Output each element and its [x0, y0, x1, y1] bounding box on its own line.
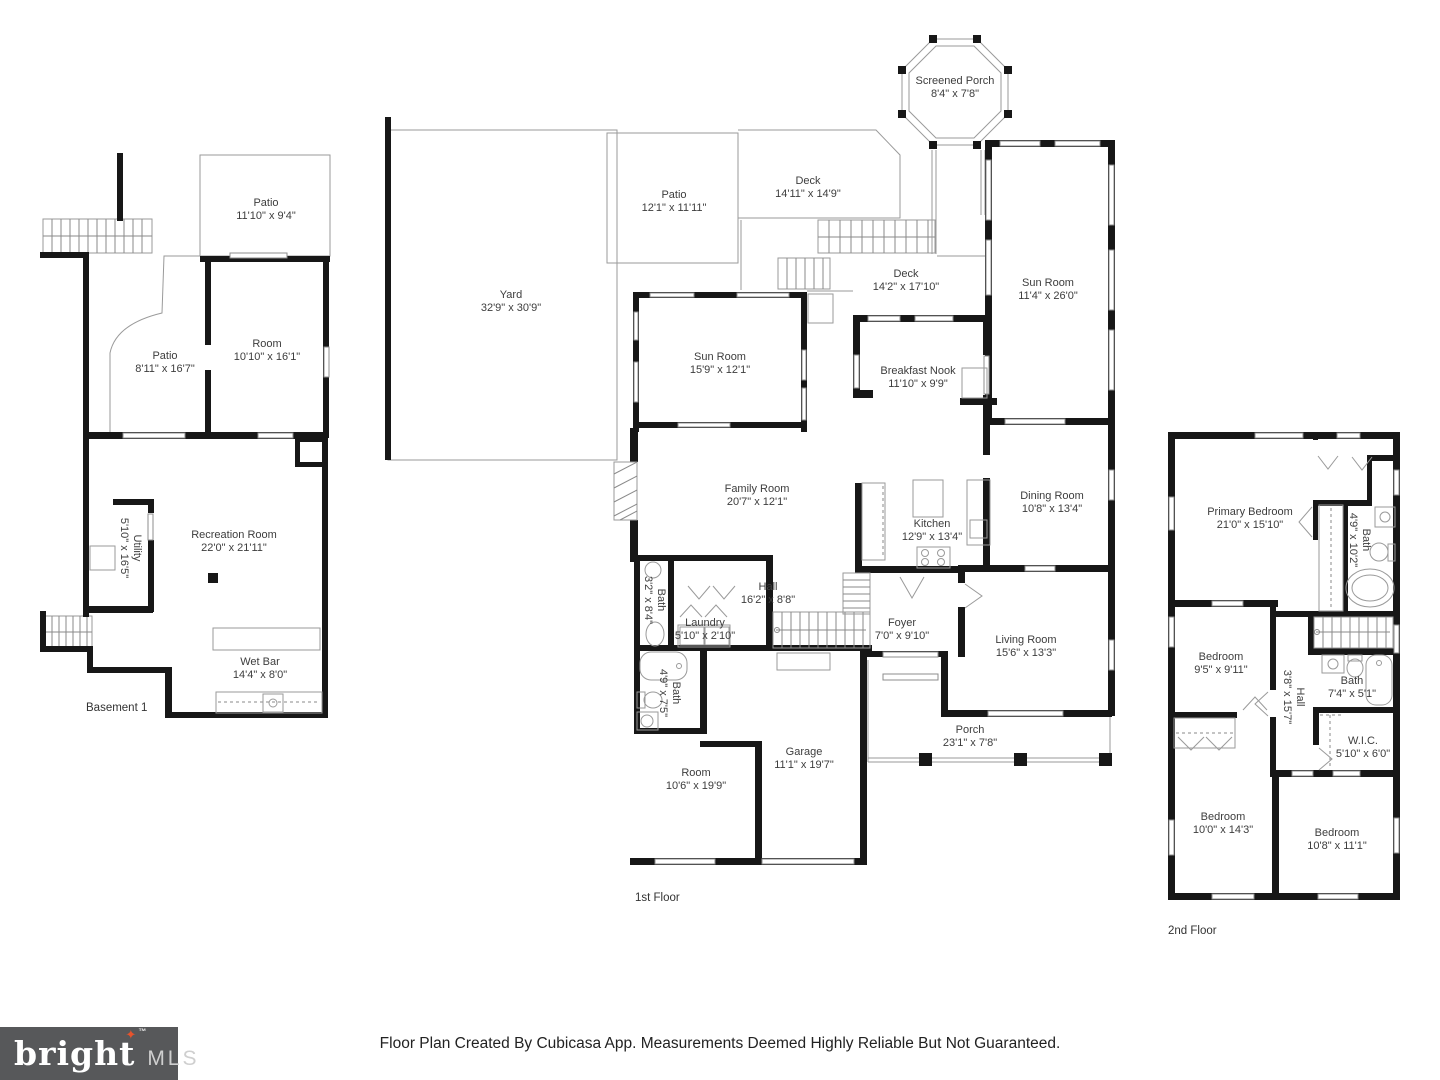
room-label: Deck — [795, 175, 821, 187]
stove-icon — [917, 547, 950, 568]
floor-title-first: 1st Floor — [635, 892, 680, 904]
room-label: Hall — [759, 581, 778, 593]
svg-text:4'9" x 10'2": 4'9" x 10'2" — [1347, 513, 1359, 567]
room-label: Bedroom — [1201, 811, 1246, 823]
room-label: W.I.C. — [1348, 735, 1378, 747]
room-label: Dining Room — [1020, 490, 1084, 502]
first-floor-plan: Screened Porch 8'4" x 7'8" Yard 32'9" x … — [385, 35, 1115, 904]
room-dims: 10'0" x 14'3" — [1193, 824, 1253, 836]
room-label: Deck — [893, 268, 919, 280]
toilet-icon — [646, 622, 664, 646]
washer-icon — [90, 546, 115, 570]
room-label: Patio — [253, 197, 278, 209]
room-dims: 15'6" x 13'3" — [996, 647, 1056, 659]
stairs-icon — [1314, 617, 1393, 648]
room-dims: 14'2" x 17'10" — [873, 281, 940, 293]
refrigerator-icon — [962, 368, 987, 398]
room-dims: 8'11" x 16'7" — [135, 363, 195, 375]
room-label: Room — [252, 338, 281, 350]
svg-text:4'9" x 7'5": 4'9" x 7'5" — [657, 669, 669, 717]
room-dims: 11'10" x 9'9" — [888, 378, 948, 390]
toilet-icon — [1347, 655, 1363, 677]
floor-title-second: 2nd Floor — [1168, 925, 1217, 937]
room-label: Room — [681, 767, 710, 779]
floor-plan-page: Patio 11'10" x 9'4" Room 10'10" x 16'1" … — [0, 0, 1440, 1080]
room-label: Laundry — [685, 617, 725, 629]
room-label: Garage — [786, 746, 823, 758]
room-dims: 10'8" x 13'4" — [1022, 503, 1082, 515]
room-label: Yard — [500, 289, 522, 301]
room-dims: 11'10" x 9'4" — [236, 210, 296, 222]
room-label: Bath — [1341, 675, 1364, 687]
room-label: Bedroom — [1315, 827, 1360, 839]
svg-text:Bath: Bath — [1360, 529, 1372, 552]
room-label: Family Room — [725, 483, 790, 495]
svg-text:Utility: Utility — [131, 535, 143, 562]
stairs-icon — [773, 573, 870, 670]
room-dims: 11'4" x 26'0" — [1018, 290, 1078, 302]
room-dims: 10'8" x 11'1" — [1307, 840, 1367, 852]
room-dims: 12'9" x 13'4" — [902, 531, 962, 543]
room-dims: 12'1" x 11'11" — [642, 202, 707, 214]
svg-text:5'10" x 16'5": 5'10" x 16'5" — [118, 518, 130, 578]
room-label-utility: Utility 5'10" x 16'5" — [118, 518, 143, 578]
room-dims: 14'4" x 8'0" — [233, 669, 287, 681]
room-label: Kitchen — [914, 518, 951, 530]
bathtub-icon — [1346, 569, 1394, 607]
room-label: Sun Room — [1022, 277, 1074, 289]
basement-floor-plan: Patio 11'10" x 9'4" Room 10'10" x 16'1" … — [40, 153, 330, 718]
room-label: Recreation Room — [191, 529, 277, 541]
basement-windows — [123, 253, 329, 540]
room-label-primary-bath: Bath 4'9" x 10'2" — [1347, 513, 1372, 567]
room-label-hall: Hall 3'8" x 15'7" — [1281, 670, 1306, 724]
room-label-bath: Bath 4'9" x 7'5" — [657, 669, 682, 717]
room-label: Bedroom — [1199, 651, 1244, 663]
room-label: Patio — [152, 350, 177, 362]
room-dims: 20'7" x 12'1" — [727, 496, 787, 508]
room-label: Patio — [661, 189, 686, 201]
room-label: Wet Bar — [240, 656, 280, 668]
room-label-bath-small: Bath 3'2" x 8'4" — [642, 576, 667, 624]
room-dims: 14'11" x 14'9" — [775, 188, 841, 200]
svg-text:3'2" x 8'4": 3'2" x 8'4" — [642, 576, 654, 624]
room-label: Foyer — [888, 617, 916, 629]
room-label: Primary Bedroom — [1207, 506, 1293, 518]
room-dims: 16'2" x 8'8" — [741, 594, 795, 606]
floor-title-basement: Basement 1 — [86, 702, 147, 714]
room-dims: 7'4" x 5'1" — [1328, 688, 1376, 700]
svg-text:Hall: Hall — [1294, 688, 1306, 707]
floor-plan-drawing: Patio 11'10" x 9'4" Room 10'10" x 16'1" … — [0, 0, 1440, 1080]
room-dims: 8'4" x 7'8" — [931, 88, 979, 100]
room-dims: 10'6" x 19'9" — [666, 780, 726, 792]
door-swing-icon — [680, 577, 982, 617]
room-label: Breakfast Nook — [880, 365, 956, 377]
svg-text:Bath: Bath — [655, 589, 667, 612]
second-floor-plan: Primary Bedroom 21'0" x 15'10" Bath 4'9"… — [1168, 432, 1400, 937]
toilet-icon — [1370, 543, 1395, 561]
room-dims: 23'1" x 7'8" — [943, 737, 997, 749]
kitchen-island — [913, 480, 943, 517]
room-dims: 5'10" x 2'10" — [675, 630, 735, 642]
room-dims: 10'10" x 16'1" — [234, 351, 301, 363]
room-label: Sun Room — [694, 351, 746, 363]
room-dims: 21'0" x 15'10" — [1217, 519, 1284, 531]
disclaimer-text: Floor Plan Created By Cubicasa App. Meas… — [0, 1035, 1440, 1053]
svg-text:3'8" x 15'7": 3'8" x 15'7" — [1281, 670, 1293, 724]
room-label: Screened Porch — [916, 75, 995, 87]
sink-icon — [1322, 655, 1344, 673]
room-dims: 15'9" x 12'1" — [690, 364, 750, 376]
room-dims: 22'0" x 21'11" — [201, 542, 267, 554]
room-dims: 32'9" x 30'9" — [481, 302, 541, 314]
room-dims: 9'5" x 9'11" — [1194, 664, 1247, 676]
sink-icon — [637, 712, 658, 730]
room-label: Living Room — [995, 634, 1056, 646]
room-dims: 7'0" x 9'10" — [875, 630, 929, 642]
room-label: Porch — [956, 724, 985, 736]
svg-text:Bath: Bath — [670, 682, 682, 705]
room-dims: 5'10" x 6'0" — [1336, 748, 1390, 760]
room-dims: 11'1" x 19'7" — [774, 759, 834, 771]
sink-icon — [1375, 507, 1395, 527]
